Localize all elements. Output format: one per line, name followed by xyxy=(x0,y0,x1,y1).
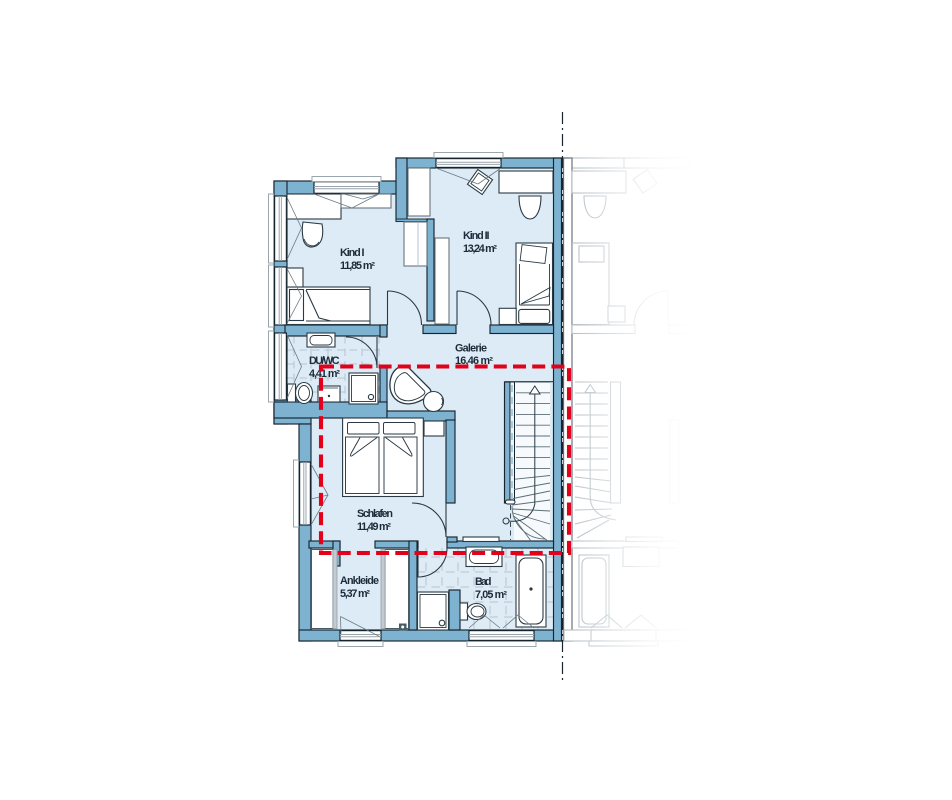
svg-text:Galerie: Galerie xyxy=(455,343,487,355)
svg-text:5,37 m²: 5,37 m² xyxy=(340,588,370,600)
svg-text:4,41 m²: 4,41 m² xyxy=(309,368,340,380)
svg-text:11,49 m²: 11,49 m² xyxy=(357,521,391,533)
svg-text:Kind II: Kind II xyxy=(463,230,490,242)
svg-text:7,05 m²: 7,05 m² xyxy=(475,589,507,601)
svg-text:13,24 m²: 13,24 m² xyxy=(463,243,497,255)
svg-text:11,85 m²: 11,85 m² xyxy=(340,260,375,272)
svg-text:Bad: Bad xyxy=(475,576,492,588)
svg-text:Ankleide: Ankleide xyxy=(340,575,379,587)
svg-text:Schlafen: Schlafen xyxy=(357,508,393,520)
svg-text:Kind I: Kind I xyxy=(340,247,365,259)
